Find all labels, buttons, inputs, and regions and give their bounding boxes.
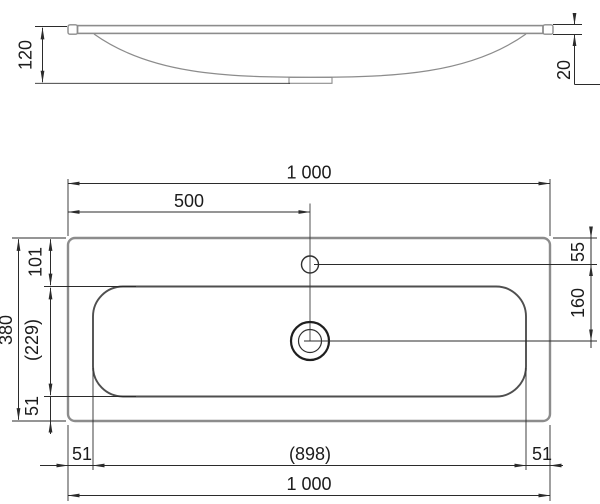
dim-label-rim-thickness: 20 <box>554 60 574 80</box>
dim-label-bottom-width: 1 000 <box>286 474 331 494</box>
dim-label-edge-to-bowl-left: 51 <box>72 444 92 464</box>
dim-label-edge-to-bowl-right: 51 <box>532 444 552 464</box>
top-view: 1 000 500 380 101 (229) 51 <box>0 163 597 502</box>
bowl-profile-curve <box>94 34 526 77</box>
drain-fitting-profile <box>289 77 332 83</box>
dim-side-height: 120 <box>16 27 68 83</box>
dim-label-edge-to-tap: 55 <box>568 242 588 262</box>
rim-left-cap <box>68 25 78 34</box>
dim-right-column: 55 160 <box>304 227 597 348</box>
washbasin-technical-drawing: 120 20 1 000 <box>0 0 600 504</box>
dim-bottom-width: 1 000 <box>68 474 550 496</box>
dim-label-bowl-width: (898) <box>289 444 331 464</box>
dim-label-top-width: 1 000 <box>286 163 331 183</box>
dim-tap-center: 500 <box>68 191 310 212</box>
dim-label-depth: 380 <box>0 315 16 345</box>
rim-right-cap <box>543 25 553 34</box>
inner-bowl-outline <box>93 287 526 397</box>
technical-drawing-canvas: 120 20 1 000 <box>0 0 600 504</box>
dim-label-bowl-depth: (229) <box>22 319 42 361</box>
dim-rim-thickness: 20 <box>553 13 600 85</box>
dim-label-bowl-to-edge-bottom: 51 <box>22 396 42 416</box>
dim-label-tap-to-drain: 160 <box>568 288 588 318</box>
rim-profile <box>78 26 544 34</box>
side-view: 120 20 <box>16 13 600 85</box>
dim-label-edge-to-bowl-top: 101 <box>26 247 46 277</box>
dim-label-side-height: 120 <box>16 40 36 70</box>
dim-top-width: 1 000 <box>68 163 550 237</box>
dim-label-tap-center: 500 <box>174 191 204 211</box>
